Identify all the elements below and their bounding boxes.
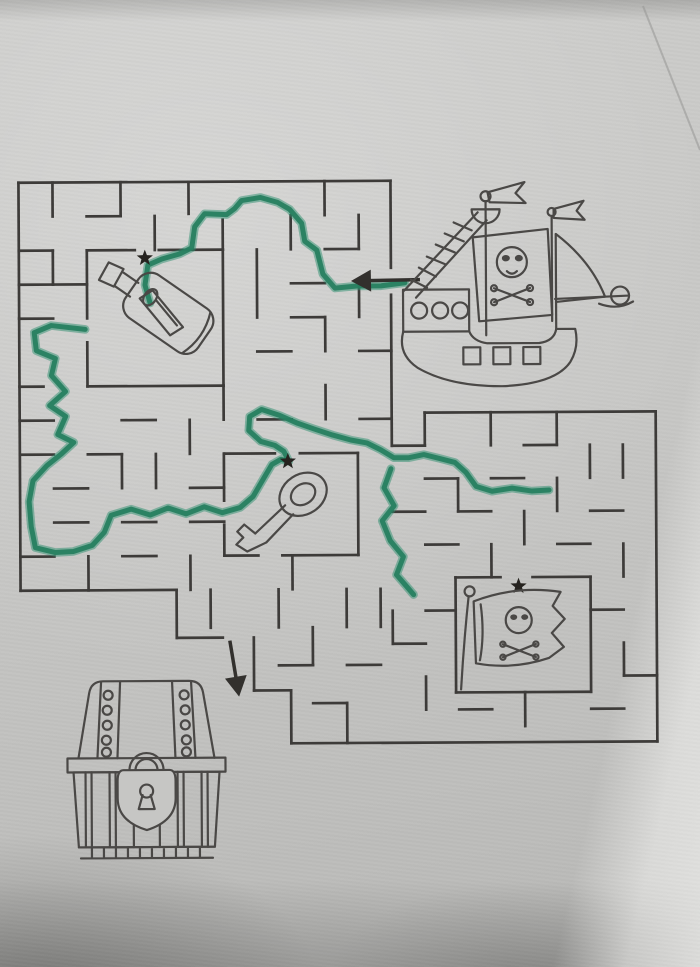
rivet-icon bbox=[103, 706, 112, 715]
hull-window-icon bbox=[463, 347, 480, 364]
hull-window-icon bbox=[523, 347, 540, 364]
key-bow-hole bbox=[287, 479, 320, 510]
solution-stroke bbox=[382, 469, 414, 595]
pennant-flag2-icon bbox=[554, 201, 585, 220]
maze-wall bbox=[425, 411, 656, 412]
key-bow bbox=[271, 464, 335, 525]
main-sail bbox=[473, 229, 552, 321]
maze-wall bbox=[591, 577, 592, 692]
maze-scene: Pirate treasure maze worksheet, partiall… bbox=[0, 0, 700, 967]
rear-sail bbox=[556, 234, 605, 302]
flagpole-knob-icon bbox=[465, 586, 475, 596]
padlock-shackle bbox=[129, 753, 163, 770]
exit-arrow-shaft bbox=[230, 641, 237, 681]
skull-eye bbox=[521, 614, 528, 620]
maze-wall bbox=[391, 295, 392, 446]
port-rail bbox=[403, 289, 469, 331]
rivet-icon bbox=[181, 705, 190, 714]
cork-icon bbox=[97, 260, 125, 289]
flagpole bbox=[461, 596, 469, 689]
rivet-icon bbox=[182, 747, 191, 756]
skull-eye bbox=[515, 255, 523, 261]
hull-window-icon bbox=[493, 347, 510, 364]
rivet-icon bbox=[181, 720, 190, 729]
flag-skull-icon bbox=[506, 607, 532, 633]
solution-marker-path bbox=[28, 196, 550, 597]
maze-wall bbox=[223, 250, 224, 386]
bottle-base-line bbox=[182, 312, 215, 356]
padlock-body-icon bbox=[118, 770, 176, 830]
porthole-icon bbox=[432, 302, 448, 318]
maze-wall bbox=[456, 692, 591, 693]
rivet-icon bbox=[182, 735, 191, 744]
rivet-icon bbox=[103, 721, 112, 730]
pirate-ship-illustration bbox=[401, 182, 633, 387]
maze-wall bbox=[358, 453, 359, 555]
porthole-icon bbox=[411, 303, 427, 319]
rivet-icon bbox=[102, 748, 111, 757]
treasure-chest-illustration bbox=[67, 681, 226, 859]
rivet-icon bbox=[104, 691, 113, 700]
skull-eye bbox=[502, 255, 510, 261]
flag-fold-line bbox=[480, 604, 483, 660]
sail-crossbones-icon bbox=[494, 288, 530, 302]
scroll-message-icon bbox=[132, 287, 190, 339]
skull-eye bbox=[510, 614, 517, 620]
photographed-worksheet: Pirate treasure maze worksheet, partiall… bbox=[0, 0, 700, 967]
jolly-roger-flag bbox=[474, 590, 565, 666]
rivet-icon bbox=[180, 690, 189, 699]
maze-wall bbox=[88, 386, 224, 387]
flag-crossbones-icon bbox=[503, 644, 536, 657]
maze-wall bbox=[21, 590, 177, 591]
skull-mouth bbox=[507, 271, 517, 274]
key-illustration bbox=[236, 464, 335, 552]
maze-wall bbox=[456, 577, 457, 692]
porthole-icon bbox=[452, 302, 468, 318]
chest-base-rail bbox=[79, 847, 215, 859]
exit-arrow-icon bbox=[225, 675, 247, 697]
maze-wall bbox=[656, 411, 658, 741]
key-shaft bbox=[255, 505, 293, 542]
rivet-icon bbox=[102, 736, 111, 745]
deck-curve bbox=[469, 302, 556, 343]
pirate-flag-illustration bbox=[461, 586, 566, 690]
maze-wall bbox=[18, 181, 390, 183]
pennant-flag-icon bbox=[487, 182, 525, 203]
paper-crease bbox=[643, 6, 700, 150]
